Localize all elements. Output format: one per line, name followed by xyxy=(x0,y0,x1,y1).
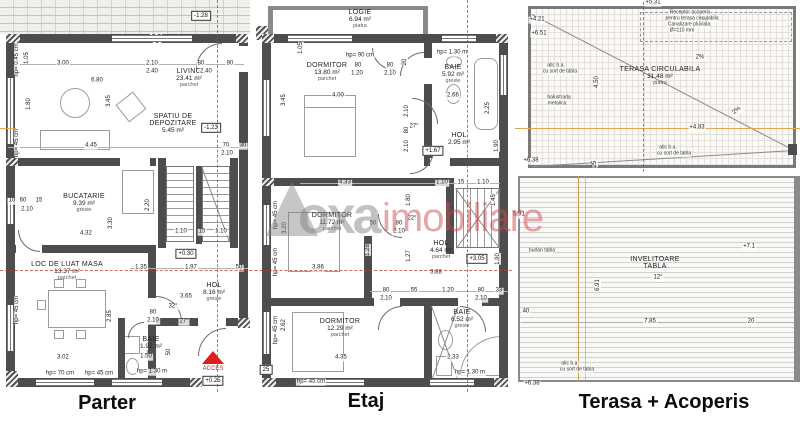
dim-label: 1.10 xyxy=(476,180,490,187)
dim-label: 80 xyxy=(197,61,206,68)
room-area: 13.80 m² xyxy=(307,69,347,76)
axis-line xyxy=(643,2,644,172)
access-arrow-icon xyxy=(202,351,224,364)
room-name: DORMITOR xyxy=(320,318,360,325)
dim-label: 70 xyxy=(222,143,231,150)
room-floor: gresie xyxy=(451,323,473,329)
room-floor: parchet xyxy=(176,82,202,88)
room-area: 5.92 m² xyxy=(442,71,464,78)
level-marker: -1.28 xyxy=(191,11,211,21)
dim-label: 27° xyxy=(408,124,419,131)
window xyxy=(112,379,162,386)
room-floor: piatra xyxy=(349,23,372,29)
fixture-sink xyxy=(124,336,140,354)
hatch-pier xyxy=(238,318,250,328)
dim-label: 2.10 xyxy=(404,140,410,152)
plan-title-etaj: Etaj xyxy=(348,390,385,413)
door-opening xyxy=(430,158,450,166)
dim-label: 80 xyxy=(382,288,391,295)
room-name: BAIE xyxy=(451,309,473,316)
room-name: LIVING xyxy=(176,68,202,75)
dim-label: 1.10 xyxy=(435,180,449,187)
room-name: SPATIU DE xyxy=(149,113,196,120)
dim-label: 1.50 xyxy=(139,354,153,361)
dim-label: 3.20 xyxy=(282,222,288,234)
dim-label: 2.66 xyxy=(446,93,460,100)
room-name: BAIE xyxy=(140,336,162,343)
hatch-pier xyxy=(262,178,274,186)
dim-label: 5.91 xyxy=(512,212,526,219)
room-name: DEPOZITARE xyxy=(149,120,196,127)
room-label-dormitor2: DORMITOR 11.72 m² parchet xyxy=(312,212,352,232)
room-name: DORMITOR xyxy=(307,62,347,69)
furniture-chair xyxy=(54,330,64,339)
room-name: BUCATARIE xyxy=(63,193,105,200)
dim-label: 1.27 xyxy=(406,250,412,262)
dim-label: hp= 45 cm xyxy=(273,248,279,276)
door-opening xyxy=(120,158,150,166)
fixture-bathtub xyxy=(474,58,498,130)
dim-label: 32° xyxy=(167,304,178,311)
dim-label: 2.10 xyxy=(474,296,488,303)
hatch-pier xyxy=(6,34,20,43)
dim-label: 15 xyxy=(198,229,207,236)
level-marker: +0.30 xyxy=(175,249,196,259)
furniture-pillow xyxy=(304,95,356,108)
dim-label: 4.00 xyxy=(331,93,345,100)
dim-label: 50 xyxy=(369,221,378,228)
room-label-depozitare: SPATIU DE DEPOZITARE 5.45 m² xyxy=(149,113,196,134)
dim-label: 2.62 xyxy=(281,319,287,331)
furniture-armchair xyxy=(116,92,147,123)
room-label-baie1: BAIE 5.92 m² gresie xyxy=(442,64,464,84)
gutter-line xyxy=(578,176,579,382)
dim-label: 1.05 xyxy=(298,42,304,54)
hatch-pier xyxy=(494,378,508,387)
room-area: 8.16 m² xyxy=(203,289,225,296)
brick-paving-pattern xyxy=(0,0,250,34)
dim-label: 40 xyxy=(522,309,531,316)
annotation: metalica xyxy=(548,101,567,107)
hatch-pier xyxy=(262,34,274,43)
room-name: LOC DE LUAT MASA xyxy=(31,261,103,268)
dim-label: 80 xyxy=(395,221,404,228)
room-name: INVELITOARE xyxy=(630,256,679,263)
plan-title-terasa: Terasa + Acoperis xyxy=(579,391,750,414)
furniture-dining-table xyxy=(48,290,106,328)
furniture-chair xyxy=(37,300,46,310)
door-arc xyxy=(412,98,438,124)
dim-label: 3.45 xyxy=(281,94,287,106)
dim-label: 4.50 xyxy=(594,76,600,88)
axis-line xyxy=(515,128,800,129)
hatch-pier xyxy=(496,34,508,43)
access-label: ACCES xyxy=(203,366,224,372)
dim-line xyxy=(300,183,500,184)
room-area: 9.39 m² xyxy=(63,200,105,207)
dim-label: 7.85 xyxy=(643,319,657,326)
window xyxy=(263,80,270,136)
level-marker: +0.25 xyxy=(202,376,223,386)
dim-label: hp= 1.30 m xyxy=(454,370,486,377)
dim-label: 6.80 xyxy=(90,78,104,85)
room-name: DORMITOR xyxy=(312,212,352,219)
hatch-pier xyxy=(190,378,202,387)
room-area: 1.92 m² xyxy=(140,343,162,350)
gutter-line xyxy=(585,176,586,382)
floorplan-canvas: LIVING 23.41 m² parchet SPATIU DE DEPOZI… xyxy=(0,0,800,423)
dim-label: 1.20 xyxy=(441,288,455,295)
dim-label: 1.20 xyxy=(350,71,364,78)
hatch-pier xyxy=(6,158,18,166)
dim-label: 4.32 xyxy=(79,231,93,238)
dim-label: hp= 0.45 cm xyxy=(14,43,20,76)
room-name: BAIE xyxy=(442,64,464,71)
dim-line xyxy=(14,64,244,65)
annotation: cu sort de tabla xyxy=(560,367,594,373)
dim-label: 27° xyxy=(178,319,189,326)
dim-label: 1.90 xyxy=(494,140,500,152)
room-name: HOL xyxy=(203,282,225,289)
slope-label: 2% xyxy=(695,55,706,62)
dim-label: 4.33 xyxy=(338,180,352,187)
room-area: 6.52 m² xyxy=(451,316,473,323)
dim-label: 2.10 xyxy=(146,318,160,325)
dim-label: hp= 45 cm xyxy=(273,316,279,344)
room-area: 5.45 m² xyxy=(149,127,196,134)
room-label-baie2: BAIE 6.52 m² gresie xyxy=(451,309,473,329)
level-marker: +6.51 xyxy=(530,31,547,38)
dim-label: 2.20 xyxy=(145,199,151,211)
dim-label: 3.00 xyxy=(56,61,70,68)
wall xyxy=(118,318,125,378)
room-area: 23.41 m² xyxy=(176,75,202,82)
room-label-dormitor3: DORMITOR 12.29 m² parchet xyxy=(320,318,360,338)
level-marker: +1.67 xyxy=(422,146,443,156)
dim-label: 80 xyxy=(404,127,410,134)
level-marker: +3.05 xyxy=(466,254,487,264)
wall xyxy=(424,306,432,378)
window xyxy=(442,35,476,42)
wall xyxy=(230,158,238,248)
room-area: 11.72 m² xyxy=(312,219,352,226)
room-floor: parchet xyxy=(430,254,452,260)
dim-label: 2.40 xyxy=(199,69,213,76)
room-label-hol2: HOL 4.64 m² parchet xyxy=(430,240,452,260)
dim-label: 50 xyxy=(166,349,172,356)
room-label-terasa: TERASA CIRCULABILA 31.48 m² piatra xyxy=(620,66,701,86)
level-marker: +5.31 xyxy=(644,0,661,6)
furniture-round-table xyxy=(60,88,90,118)
dim-label: 2.10 xyxy=(20,207,34,214)
dim-label: 15 xyxy=(457,180,466,187)
dim-label: 1.90 xyxy=(495,253,501,265)
room-area: 12.29 m² xyxy=(320,325,360,332)
dim-label: hp= 1.30 m xyxy=(436,50,468,57)
window xyxy=(112,35,192,42)
roof-drain xyxy=(788,144,797,155)
dim-label: 4.45 xyxy=(84,143,98,150)
dim-label: 3.30 xyxy=(108,217,114,229)
room-area: 4.64 m² xyxy=(430,247,452,254)
room-floor: gresie xyxy=(63,207,105,213)
dim-label: 2.33 xyxy=(446,355,460,362)
axis-line xyxy=(467,0,468,392)
dim-label: 2.10 xyxy=(383,71,397,78)
plan-title-parter: Parter xyxy=(78,392,136,415)
room-floor: parchet xyxy=(31,275,103,281)
dim-label: 3.45 xyxy=(106,95,112,107)
window xyxy=(500,55,507,95)
annotation: cu sort de tabla xyxy=(657,151,691,157)
dim-label: 60 xyxy=(19,198,28,205)
room-name: TABLA xyxy=(630,263,679,270)
dim-label: 3.02 xyxy=(56,355,70,362)
door-opening xyxy=(424,58,432,84)
door-arc xyxy=(378,306,402,330)
dim-label: 2.10 xyxy=(404,105,410,117)
room-label-living: LIVING 23.41 m² parchet xyxy=(176,68,202,88)
wall xyxy=(158,158,166,248)
level-marker: +4.21 xyxy=(528,17,545,24)
dim-label: 55 xyxy=(410,288,419,295)
level-marker: 25 xyxy=(260,365,273,375)
dim-label: 80 xyxy=(386,63,395,70)
dim-label: 2.25 xyxy=(485,102,491,114)
dim-label: 2.85 xyxy=(107,310,113,322)
dim-label: hp= 70 cm xyxy=(45,371,75,378)
hatch-pier xyxy=(6,371,18,387)
door-opening xyxy=(198,318,226,326)
room-floor: parchet xyxy=(312,226,352,232)
window xyxy=(36,379,94,386)
room-name: LOGIE xyxy=(349,9,372,16)
hatch-pier xyxy=(262,378,276,387)
wall xyxy=(268,6,273,36)
wall xyxy=(239,34,248,326)
level-marker: +6.38 xyxy=(523,381,540,388)
dim-label: 25 xyxy=(592,161,598,168)
axis-line xyxy=(0,270,512,271)
annotation: burlan tabla xyxy=(529,248,555,254)
level-marker: +6.38 xyxy=(522,158,539,165)
window xyxy=(263,205,270,245)
room-label-logie: LOGIE 6.94 m² piatra xyxy=(349,9,372,29)
dim-label: 1.80 xyxy=(406,194,412,206)
room-floor: gresie xyxy=(203,296,225,302)
dim-label: 80 xyxy=(149,310,158,317)
dim-label: 1.45 xyxy=(491,194,497,206)
window xyxy=(7,305,14,351)
room-area: 6.94 m² xyxy=(349,16,372,23)
dim-label: 4.35 xyxy=(334,355,348,362)
dim-label: 2.40 xyxy=(145,69,159,76)
dim-label: hp= 45 cm xyxy=(14,129,20,157)
dim-label: 1.05 xyxy=(24,52,30,64)
wall xyxy=(262,178,454,186)
dim-label: 2.10 xyxy=(145,61,159,68)
room-floor: gresie xyxy=(442,78,464,84)
window xyxy=(7,78,14,144)
dim-label: 10 xyxy=(8,198,17,205)
room-label-bucatarie: BUCATARIE 9.39 m² gresie xyxy=(63,193,105,213)
dim-label: 1.28 xyxy=(365,244,371,256)
dim-label: 1.80 xyxy=(26,98,32,110)
room-label-hol: HOL 8.16 m² gresie xyxy=(203,282,225,302)
axis-line xyxy=(217,0,218,392)
dim-label: 15 xyxy=(35,198,44,205)
dim-label: 33 xyxy=(495,288,504,295)
dim-label: 30 xyxy=(239,143,248,150)
dim-label: 90 xyxy=(226,61,235,68)
dim-label: hp= 45 cm xyxy=(296,379,326,386)
dim-label: 3.65 xyxy=(179,294,193,301)
dim-label: hp= 45 cm xyxy=(273,201,279,229)
dim-label: hp= 1.30 m xyxy=(136,369,168,376)
dim-label: 22° xyxy=(406,216,417,223)
room-floor: parchet xyxy=(307,76,347,82)
door-opening xyxy=(239,46,248,72)
dim-label: 20 xyxy=(747,319,756,326)
room-name: HOL xyxy=(430,240,452,247)
wall xyxy=(794,176,800,382)
dim-label: 2.10 xyxy=(392,229,406,236)
room-label-dormitor1: DORMITOR 13.80 m² parchet xyxy=(307,62,347,82)
hatch-pier xyxy=(236,34,248,43)
level-marker: +7.1 xyxy=(742,244,756,251)
room-floor: parchet xyxy=(320,332,360,338)
room-name: TERASA CIRCULABILA xyxy=(620,66,701,73)
dim-line xyxy=(8,147,248,148)
wall xyxy=(423,6,428,36)
dim-label: 2.10 xyxy=(379,296,393,303)
dim-label: 1.10 xyxy=(174,229,188,236)
room-area: 31.48 m² xyxy=(620,73,701,80)
window xyxy=(263,312,270,354)
level-marker: +4.83 xyxy=(688,125,705,132)
dim-label: hp= 45 cm xyxy=(14,296,20,324)
annotation: cu sort de tabla xyxy=(543,69,577,75)
dim-label: 80 xyxy=(354,63,363,70)
dim-label: hp= 45 cm xyxy=(84,371,114,378)
dim-label: 80 xyxy=(477,288,486,295)
annotation: Ø=110 mm xyxy=(670,28,695,34)
roof-slope-label: 12° xyxy=(652,275,663,282)
dim-label: 6.91 xyxy=(595,279,601,291)
dim-label: 20 xyxy=(402,59,408,66)
dim-label: hp= 90 cm xyxy=(345,53,375,60)
dim-line xyxy=(370,291,508,292)
room-label-dining: LOC DE LUAT MASA 13.37 m² parchet xyxy=(31,261,103,281)
room-floor: piatra xyxy=(620,80,701,86)
dim-label: 2.10 xyxy=(220,151,234,158)
furniture-chair xyxy=(76,330,86,339)
room-label-roof: INVELITOARE TABLA xyxy=(630,256,679,270)
